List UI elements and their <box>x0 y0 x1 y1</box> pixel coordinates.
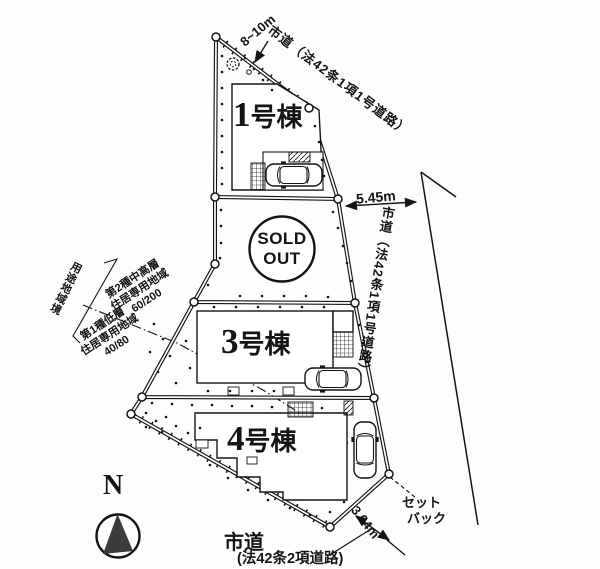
sold-out-badge: SOLD OUT <box>250 229 314 268</box>
plot4-label: 4号棟 <box>227 421 297 456</box>
compass-north-label: N <box>103 470 123 502</box>
car-plot4 <box>351 422 378 478</box>
setback-label: セット バック <box>402 495 446 526</box>
sold-out-line2: OUT <box>250 249 314 269</box>
site-plan-diagram: 市道（法42条1項1号道路） 8~10m 5.45m 市道（法42条1項1号道路… <box>0 0 600 569</box>
setback-label-line1: セット <box>402 495 446 511</box>
compass-icon <box>97 514 140 558</box>
sold-out-line1: SOLD <box>250 229 314 249</box>
plot3-number: 3 <box>221 322 239 361</box>
plot1-label: 1号棟 <box>233 97 303 132</box>
plot3-label: 3号棟 <box>221 324 291 359</box>
plot1-number: 1 <box>233 95 251 134</box>
plot4-suffix: 号棟 <box>245 426 297 456</box>
car-plot1 <box>266 161 322 188</box>
width-8-10m-arrow <box>255 41 268 62</box>
setback-label-line2: バック <box>402 511 446 527</box>
plan-linework <box>0 0 600 569</box>
plot3-suffix: 号棟 <box>239 329 291 359</box>
plot1-suffix: 号棟 <box>251 102 303 132</box>
plot4-number: 4 <box>227 419 245 458</box>
south-road-sublabel: (法42条2項道路) <box>237 547 343 568</box>
